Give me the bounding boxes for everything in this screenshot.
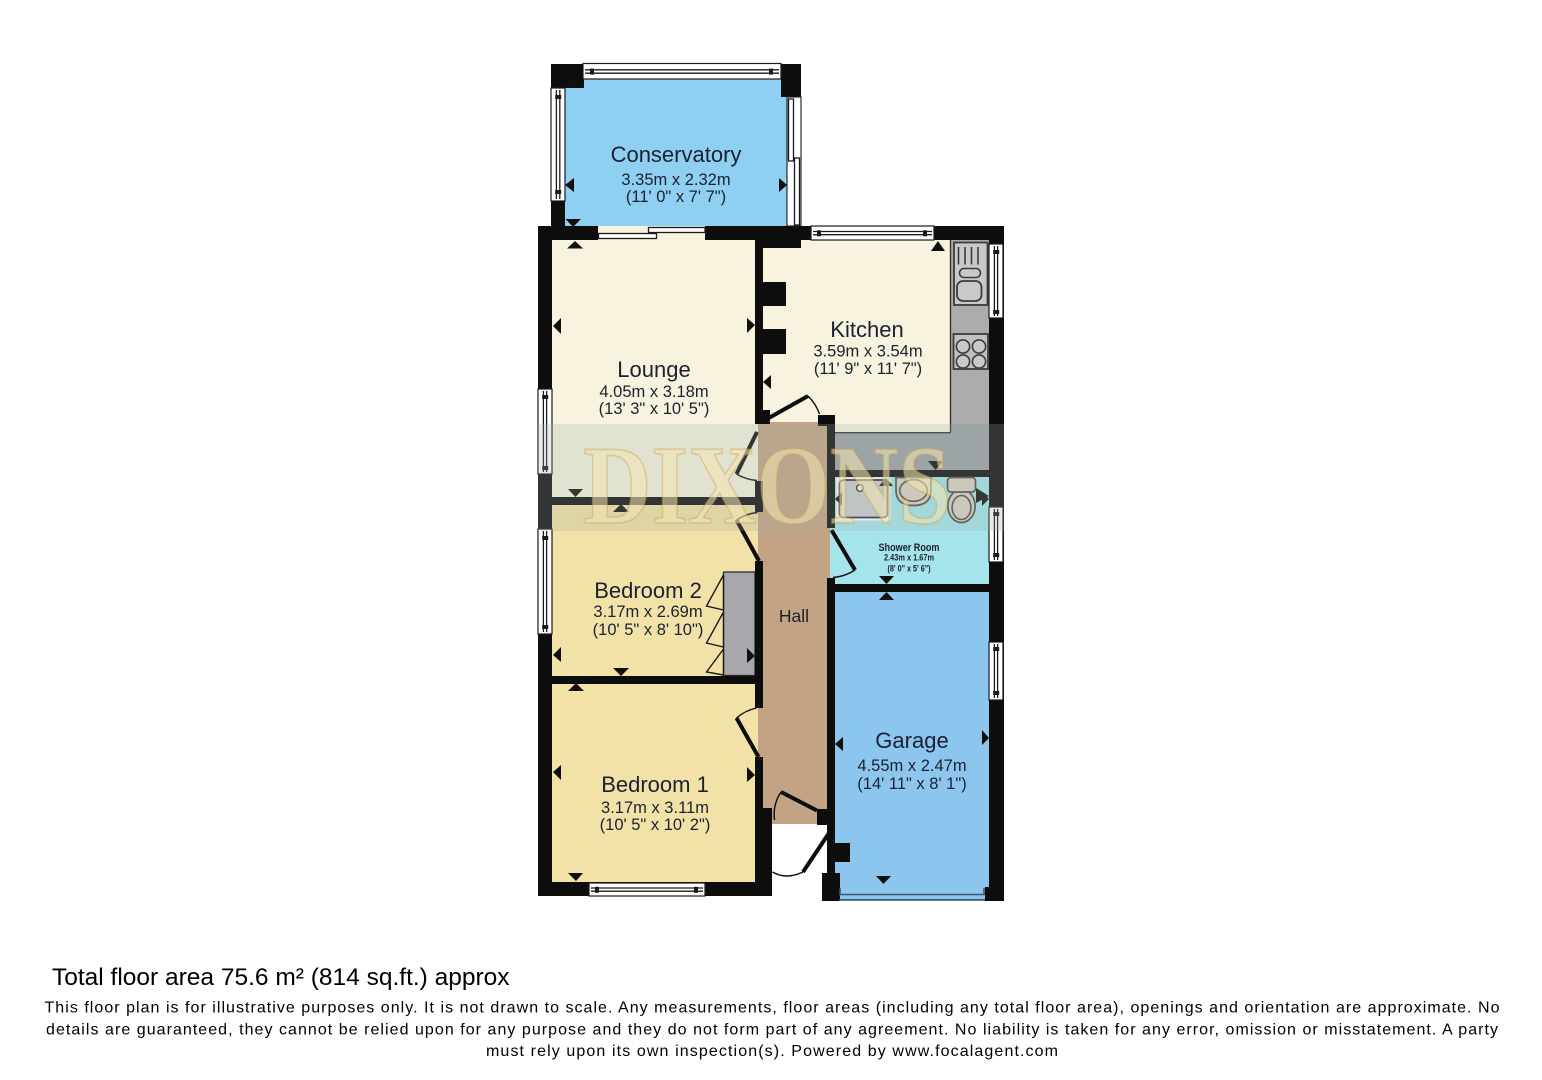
- svg-text:4.05m x 3.18m: 4.05m x 3.18m: [599, 383, 708, 401]
- svg-text:(13' 3" x 10' 5"): (13' 3" x 10' 5"): [599, 400, 710, 418]
- svg-text:Kitchen: Kitchen: [830, 317, 903, 342]
- svg-text:(11' 0" x 7' 7"): (11' 0" x 7' 7"): [626, 188, 726, 206]
- svg-text:3.35m x 2.32m: 3.35m x 2.32m: [621, 171, 730, 189]
- svg-text:Total floor area 75.6 m² (814: Total floor area 75.6 m² (814 sq.ft.) ap…: [52, 964, 510, 991]
- svg-text:Garage: Garage: [875, 728, 948, 753]
- svg-text:3.59m x 3.54m: 3.59m x 3.54m: [813, 343, 922, 361]
- svg-text:Bedroom 2: Bedroom 2: [594, 578, 702, 603]
- svg-text:4.55m x 2.47m: 4.55m x 2.47m: [857, 757, 966, 775]
- svg-text:DIXONS: DIXONS: [583, 424, 951, 548]
- svg-text:(10' 5" x 8' 10"): (10' 5" x 8' 10"): [593, 621, 704, 639]
- svg-text:must rely upon its own inspect: must rely upon its own inspection(s). Po…: [486, 1043, 1058, 1060]
- svg-text:(14' 11" x 8' 1"): (14' 11" x 8' 1"): [857, 775, 966, 793]
- svg-text:(10' 5" x 10' 2"): (10' 5" x 10' 2"): [600, 816, 711, 834]
- svg-text:(8' 0" x 5' 6"): (8' 0" x 5' 6"): [888, 564, 931, 574]
- svg-text:Conservatory: Conservatory: [611, 142, 742, 167]
- svg-text:Hall: Hall: [779, 606, 809, 626]
- svg-text:details are guaranteed, they c: details are guaranteed, they cannot be r…: [46, 1021, 1498, 1038]
- svg-text:(11' 9" x 11' 7"): (11' 9" x 11' 7"): [814, 360, 922, 378]
- svg-text:Lounge: Lounge: [617, 357, 690, 382]
- svg-text:3.17m x 3.11m: 3.17m x 3.11m: [601, 799, 709, 817]
- svg-text:2.43m x 1.67m: 2.43m x 1.67m: [884, 553, 934, 563]
- svg-text:This floor plan is for illustr: This floor plan is for illustrative purp…: [45, 1000, 1500, 1017]
- svg-text:Bedroom 1: Bedroom 1: [601, 772, 709, 797]
- svg-text:3.17m x 2.69m: 3.17m x 2.69m: [593, 603, 702, 621]
